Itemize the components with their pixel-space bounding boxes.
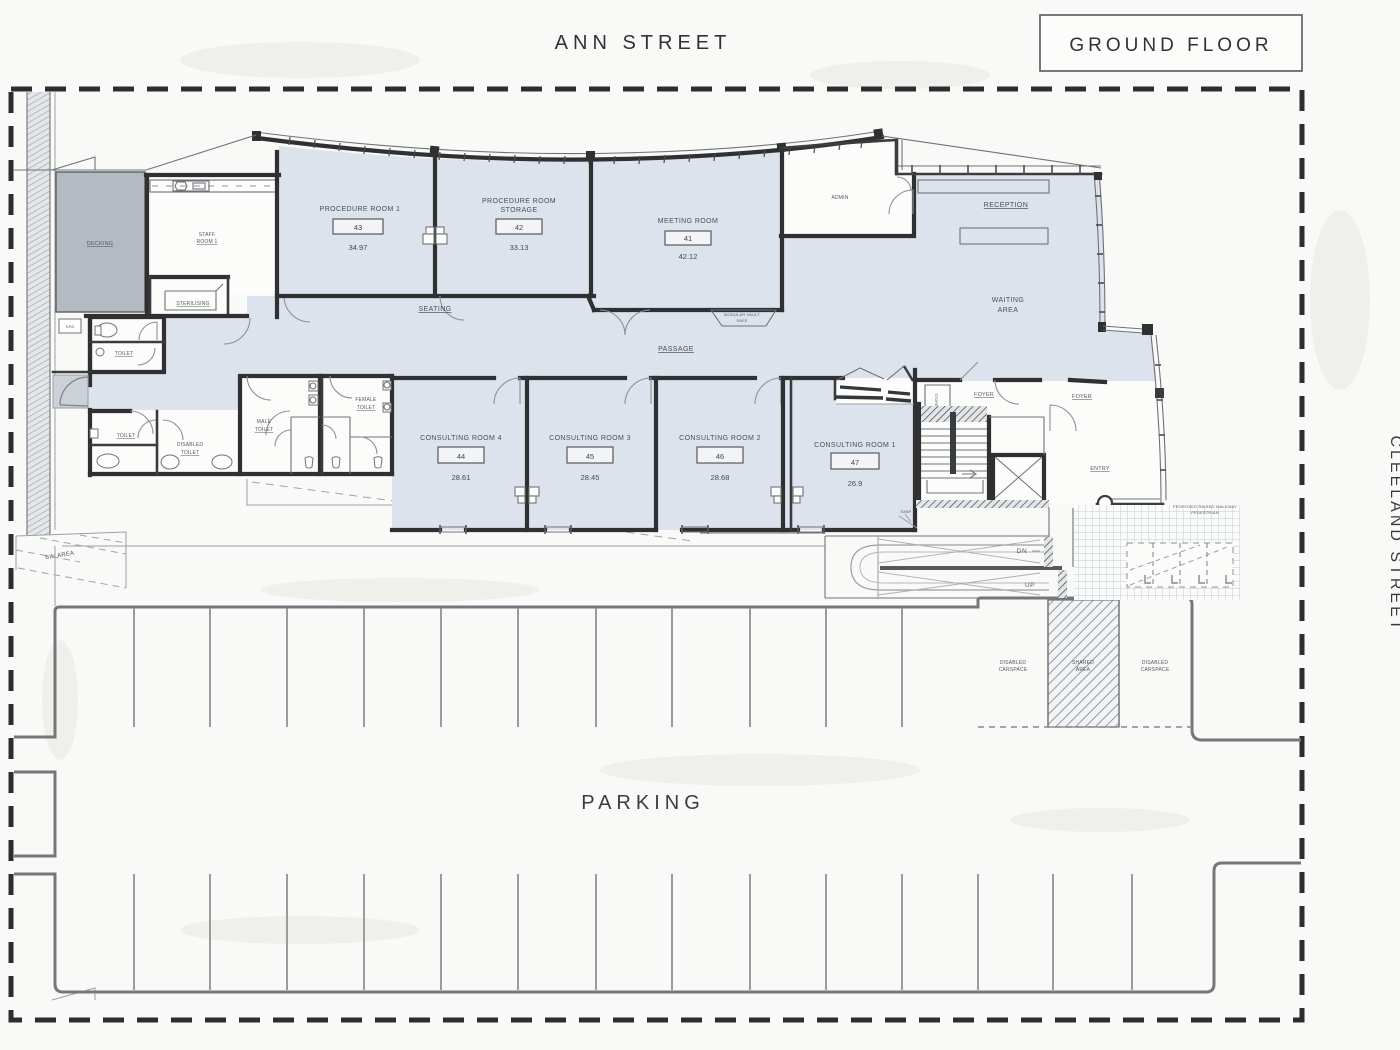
svg-text:UP: UP (1025, 582, 1035, 589)
svg-text:DN: DN (1017, 548, 1027, 555)
svg-text:SAFE: SAFE (736, 318, 747, 323)
svg-text:CLEELAND STREET: CLEELAND STREET (1387, 435, 1400, 632)
svg-text:28.61: 28.61 (452, 473, 471, 482)
svg-text:TOILET: TOILET (255, 427, 274, 433)
svg-text:FOYER: FOYER (1072, 394, 1092, 400)
svg-text:42: 42 (515, 223, 523, 232)
svg-text:TOILET: TOILET (117, 433, 136, 439)
svg-text:ENTRY: ENTRY (1090, 466, 1110, 472)
svg-text:GROUND FLOOR: GROUND FLOOR (1069, 35, 1272, 56)
svg-text:RECEPTION: RECEPTION (984, 202, 1028, 209)
svg-text:MEETING ROOM: MEETING ROOM (658, 218, 718, 225)
svg-text:TOILET: TOILET (357, 405, 376, 411)
svg-text:41: 41 (684, 234, 692, 243)
svg-text:CARSPACE: CARSPACE (1141, 667, 1170, 673)
svg-text:STERILISING: STERILISING (176, 301, 209, 307)
svg-text:PARKING: PARKING (581, 792, 705, 814)
svg-text:ADMIN: ADMIN (831, 195, 848, 201)
svg-text:44: 44 (457, 452, 465, 461)
svg-text:SPA: SPA (66, 324, 74, 329)
svg-text:TOILET: TOILET (115, 351, 134, 357)
svg-text:CONSULTING ROOM 2: CONSULTING ROOM 2 (679, 435, 761, 442)
svg-text:26.9: 26.9 (848, 479, 863, 488)
svg-text:STAFF: STAFF (199, 232, 215, 238)
svg-text:42.12: 42.12 (679, 252, 698, 261)
svg-text:DISABLED: DISABLED (177, 442, 204, 448)
svg-text:ANN STREET: ANN STREET (555, 32, 732, 54)
svg-text:43: 43 (354, 223, 362, 232)
svg-text:RAMP: RAMP (901, 510, 912, 514)
svg-text:47: 47 (851, 458, 859, 467)
svg-text:PROPOSED RAISED WALKWAY: PROPOSED RAISED WALKWAY (1173, 504, 1237, 509)
svg-text:FEMALE: FEMALE (355, 397, 377, 403)
svg-text:CONSULTING ROOM 1: CONSULTING ROOM 1 (814, 442, 896, 449)
svg-text:CARSPACE: CARSPACE (999, 667, 1028, 673)
svg-text:28.68: 28.68 (711, 473, 730, 482)
svg-text:PEDESTRIAN: PEDESTRIAN (1191, 510, 1219, 515)
svg-text:MODULAR VAULT: MODULAR VAULT (724, 312, 760, 317)
svg-text:TOILET: TOILET (181, 450, 200, 456)
svg-text:SHARED: SHARED (1072, 660, 1094, 666)
svg-text:STORE: STORE (934, 394, 938, 407)
svg-text:28.45: 28.45 (581, 473, 600, 482)
svg-text:DECKING: DECKING (87, 241, 113, 247)
svg-text:CONSULTING ROOM 4: CONSULTING ROOM 4 (420, 435, 502, 442)
svg-text:SEATING: SEATING (418, 306, 451, 313)
svg-text:PROCEDURE ROOM: PROCEDURE ROOM (482, 198, 556, 205)
svg-text:45: 45 (586, 452, 594, 461)
svg-text:AREA: AREA (998, 307, 1019, 314)
svg-text:AREA: AREA (1076, 667, 1091, 673)
svg-text:STORAGE: STORAGE (501, 207, 538, 214)
svg-text:33.13: 33.13 (510, 243, 529, 252)
svg-text:MALE: MALE (257, 419, 272, 425)
svg-text:DISABLED: DISABLED (1000, 660, 1027, 666)
svg-text:DISABLED: DISABLED (1142, 660, 1169, 666)
svg-text:46: 46 (716, 452, 724, 461)
svg-text:PASSAGE: PASSAGE (658, 346, 694, 353)
svg-text:WAITING: WAITING (992, 297, 1024, 304)
svg-text:ROOM 1: ROOM 1 (197, 239, 218, 245)
svg-text:PROCEDURE ROOM 1: PROCEDURE ROOM 1 (320, 206, 401, 213)
svg-text:CONSULTING ROOM 3: CONSULTING ROOM 3 (549, 435, 631, 442)
svg-text:FOYER: FOYER (974, 392, 994, 398)
svg-text:34.97: 34.97 (349, 243, 368, 252)
